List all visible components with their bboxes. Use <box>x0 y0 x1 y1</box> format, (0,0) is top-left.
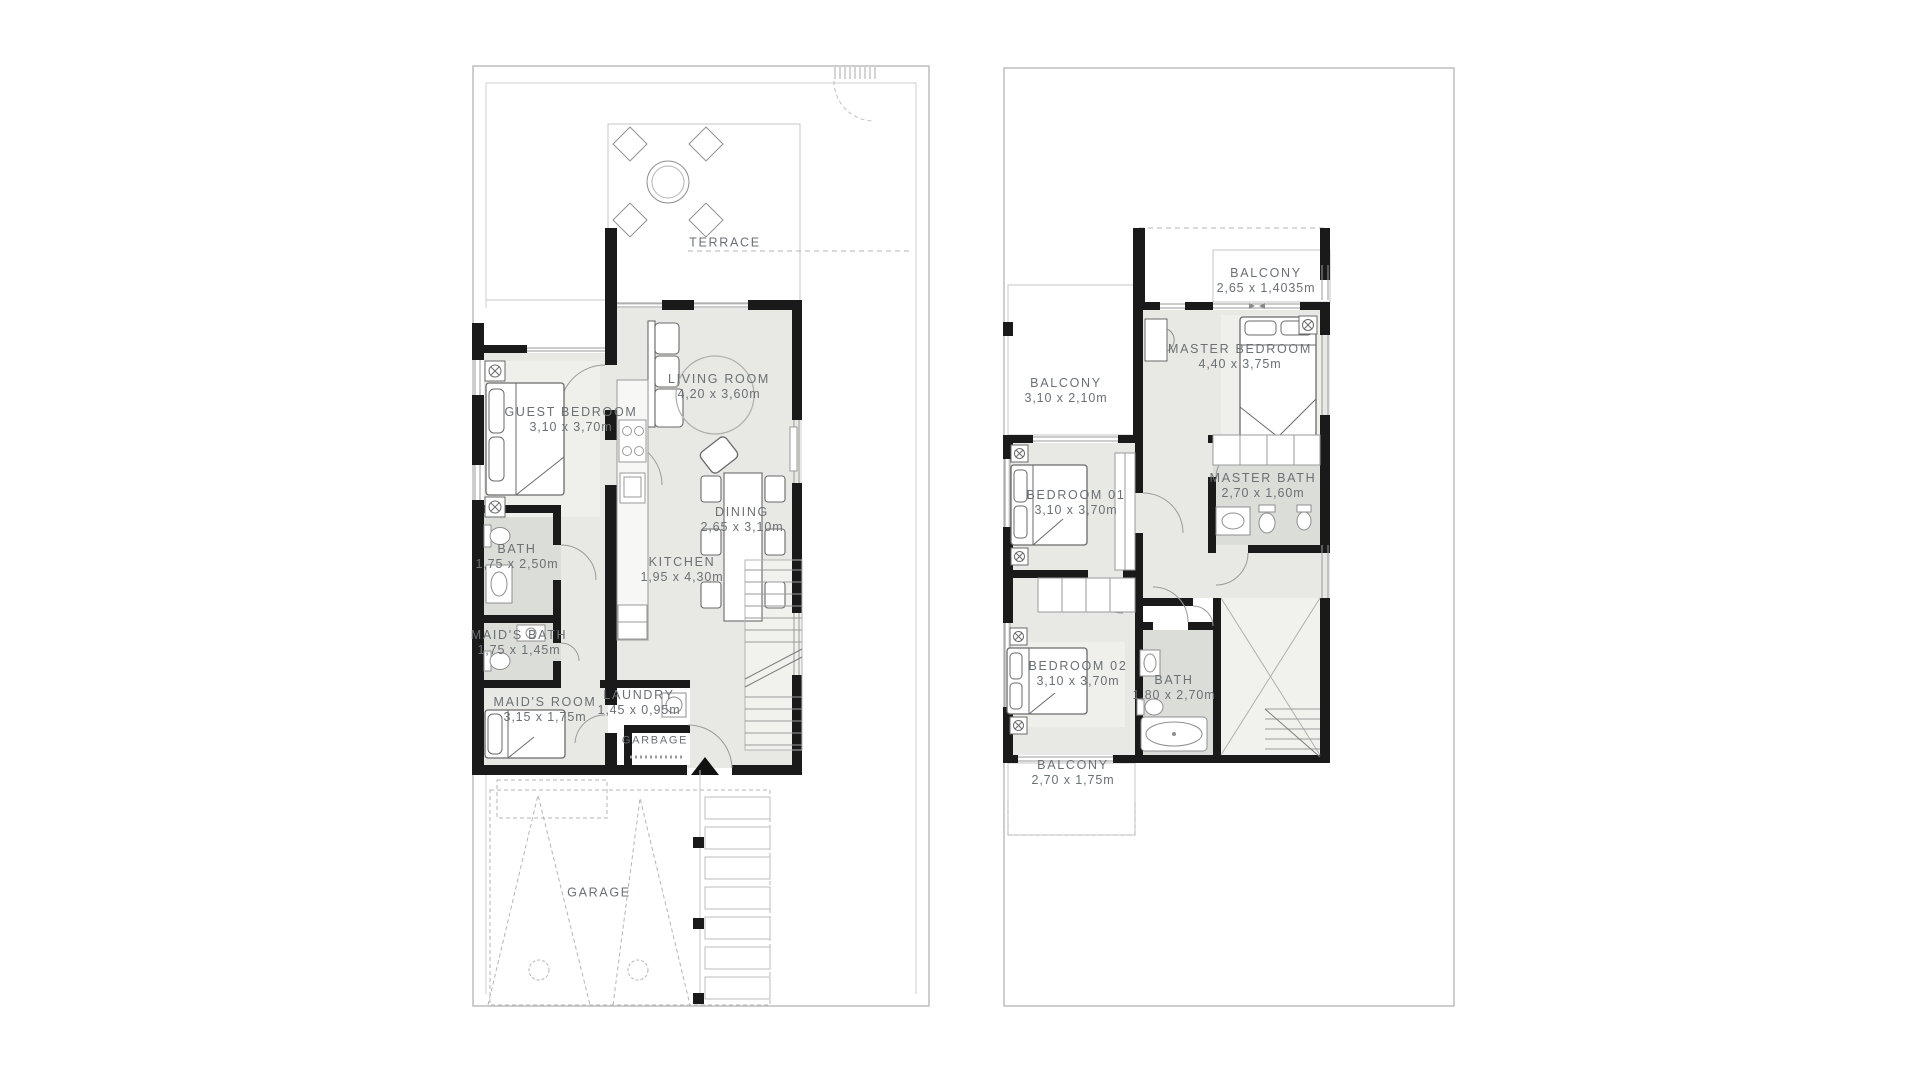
room-label-bedroom-02: BEDROOM 02 3,10 x 3,70m <box>1029 659 1128 689</box>
bedside-lamp-icon <box>1010 628 1027 645</box>
room-label-maids-room: MAID'S ROOM 3,15 x 1,75m <box>493 695 596 725</box>
first-floor-drawing <box>1003 67 1455 1008</box>
room-name: BALCONY <box>1030 376 1102 391</box>
room-label-balcony-bottom: BALCONY 2,70 x 1,75m <box>1031 758 1114 788</box>
entry-gate-hatch-icon <box>835 67 875 79</box>
bedside-lamp-icon <box>485 497 505 517</box>
room-name: GUEST BEDROOM <box>505 405 638 420</box>
bedside-lamp-icon <box>1011 445 1028 462</box>
master-bed-icon <box>1240 317 1316 437</box>
room-label-laundry: LAUNDRY 1,45 x 0,95m <box>597 688 680 718</box>
room-dims: 1,75 x 2,50m <box>475 557 558 572</box>
room-name: BALCONY <box>1037 758 1109 773</box>
room-dims: 3,10 x 3,70m <box>1034 503 1117 518</box>
room-name: BEDROOM 01 <box>1027 488 1126 503</box>
room-dims: 3,15 x 1,75m <box>503 710 586 725</box>
bedside-lamp-icon <box>485 361 505 381</box>
ground-floor-plan: TERRACE LIVING ROOM 4,20 x 3,60m GUEST B… <box>472 65 930 1008</box>
gate-swing-icon <box>834 81 874 121</box>
ground-floor-drawing <box>472 65 930 1008</box>
room-label-master-bedroom: MASTER BEDROOM 4,40 x 3,75m <box>1168 342 1312 372</box>
room-name: KITCHEN <box>649 555 716 570</box>
wardrobe-icon <box>1213 435 1320 465</box>
first-floor-plan: BALCONY 2,65 x 1,4035m MASTER BEDROOM 4,… <box>1003 67 1455 1008</box>
room-name: MAID'S ROOM <box>493 695 596 710</box>
floorplan-canvas: TERRACE LIVING ROOM 4,20 x 3,60m GUEST B… <box>0 0 1920 1080</box>
balcony-left <box>1008 285 1135 435</box>
room-label-garage: GARAGE <box>567 886 631 901</box>
fence-posts-icon <box>693 837 704 1004</box>
room-dims: 3,10 x 2,10m <box>1024 391 1107 406</box>
room-label-master-bath: MASTER BATH 2,70 x 1,60m <box>1210 471 1317 501</box>
bedside-lamp-icon <box>1010 717 1027 734</box>
room-name: GARBAGE <box>622 734 688 749</box>
dining-table-icon <box>701 473 785 621</box>
room-label-guest-bedroom: GUEST BEDROOM 3,10 x 3,70m <box>505 405 638 435</box>
room-dims: 2,70 x 1,75m <box>1031 773 1114 788</box>
room-dims: 2,65 x 3,10m <box>700 520 783 535</box>
room-name: MASTER BEDROOM <box>1168 342 1312 357</box>
room-name: LIVING ROOM <box>668 372 770 387</box>
room-dims: 1,45 x 0,95m <box>597 703 680 718</box>
room-label-terrace: TERRACE <box>689 236 761 251</box>
room-label-balcony-top: BALCONY 2,65 x 1,4035m <box>1217 266 1316 296</box>
room-name: TERRACE <box>689 236 761 251</box>
room-label-living-room: LIVING ROOM 4,20 x 3,60m <box>668 372 770 402</box>
room-name: MAID'S BATH <box>471 628 568 643</box>
room-label-dining: DINING 2,65 x 3,10m <box>700 505 783 535</box>
room-dims: 1,95 x 4,30m <box>640 570 723 585</box>
bedside-lamp-icon <box>1011 548 1028 565</box>
room-label-bath: BATH 1,75 x 2,50m <box>475 542 558 572</box>
room-dims: 4,20 x 3,60m <box>677 387 760 402</box>
dresser-icon <box>1145 319 1167 361</box>
room-dims: 3,10 x 3,70m <box>529 420 612 435</box>
room-name: BALCONY <box>1230 266 1302 281</box>
room-label-garbage: GARBAGE <box>622 734 688 749</box>
room-name: GARAGE <box>567 886 631 901</box>
room-dims: 3,10 x 3,70m <box>1036 674 1119 689</box>
room-name: BATH <box>1154 673 1193 688</box>
room-label-kitchen: KITCHEN 1,95 x 4,30m <box>640 555 723 585</box>
guest-bed-icon <box>486 383 564 495</box>
room-name: LAUNDRY <box>603 688 674 703</box>
room-dims: 2,65 x 1,4035m <box>1217 281 1316 296</box>
room-dims: 1,80 x 2,70m <box>1132 688 1215 703</box>
room-dims: 2,70 x 1,60m <box>1221 486 1304 501</box>
room-dims: 4,40 x 3,75m <box>1198 357 1281 372</box>
car-bay-icon <box>613 798 690 1005</box>
room-label-bedroom-01: BEDROOM 01 3,10 x 3,70m <box>1027 488 1126 518</box>
room-name: DINING <box>715 505 769 520</box>
room-name: BEDROOM 02 <box>1029 659 1128 674</box>
room-label-maids-bath: MAID'S BATH 1,75 x 1,45m <box>471 628 568 658</box>
room-label-balcony-left: BALCONY 3,10 x 2,10m <box>1024 376 1107 406</box>
room-name: BATH <box>497 542 536 557</box>
room-name: MASTER BATH <box>1210 471 1317 486</box>
stepping-stones-icon <box>705 797 770 999</box>
wardrobe-icon <box>1038 578 1135 612</box>
bedside-lamp-icon <box>1299 316 1317 334</box>
room-dims: 1,75 x 1,45m <box>477 643 560 658</box>
room-label-bath-02: BATH 1,80 x 2,70m <box>1132 673 1215 703</box>
